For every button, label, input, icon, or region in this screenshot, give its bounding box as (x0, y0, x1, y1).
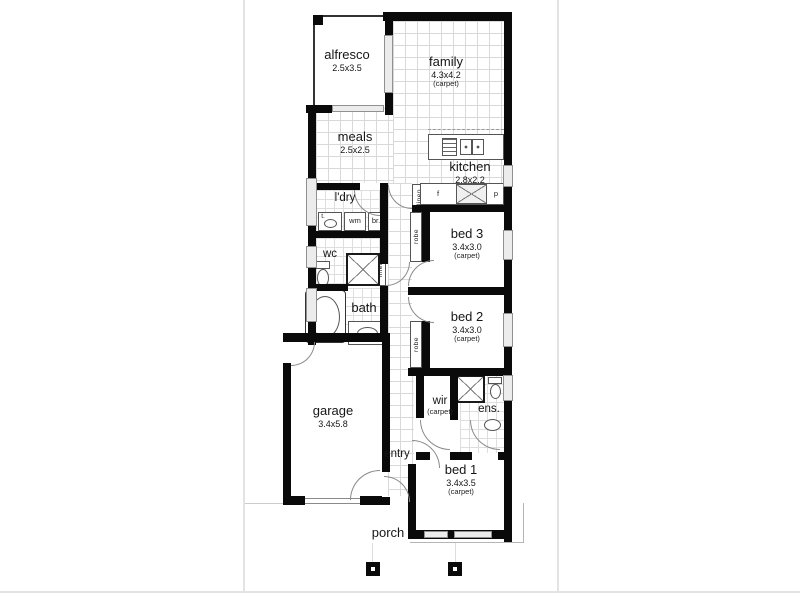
room-size: 2.8x2.2 (449, 175, 490, 185)
wall (380, 286, 388, 338)
sink-icon (460, 139, 472, 155)
room-name: wir (427, 395, 453, 408)
garage-door (305, 498, 360, 504)
room-label-bath: bath (351, 301, 376, 316)
wall (308, 231, 388, 238)
porch-post-icon (371, 567, 375, 571)
trough-label: t. (321, 213, 325, 220)
door-arc-garage-side (291, 342, 315, 366)
pantry-label: p (494, 189, 498, 198)
wall (283, 363, 291, 505)
wall (283, 496, 305, 505)
page-border-right (557, 0, 559, 591)
alfresco-post-icon (313, 15, 323, 25)
shower-icon (456, 375, 485, 403)
room-label-garage: garage 3.4x5.8 (313, 404, 353, 429)
alfresco-edge (313, 15, 387, 17)
toilet-icon (315, 261, 330, 269)
toilet-icon (490, 384, 501, 399)
floor-plan: linen robe robe linen f p t. wm br. (0, 0, 800, 600)
robe-bed3-label: robe (413, 229, 420, 244)
window-meals (306, 178, 317, 226)
room-label-alfresco: alfresco 2.5x3.5 (324, 48, 370, 73)
room-label-porch: porch (372, 526, 405, 541)
room-name: meals (338, 130, 373, 145)
wall (283, 333, 388, 342)
porch-slab (410, 503, 524, 543)
overhead-cupboard-dash (428, 129, 504, 133)
wall (380, 183, 388, 238)
room-label-bed1: bed 1 3.4x3.5 (carpet) (445, 463, 478, 496)
room-label-entry: entry (384, 448, 410, 461)
room-name: bed 3 (451, 227, 484, 242)
room-label-bed3: bed 3 3.4x3.0 (carpet) (451, 227, 484, 260)
broom-label: br. (372, 216, 380, 225)
room-name: wc (323, 248, 337, 261)
robe-bed3: robe (410, 212, 422, 262)
post-guide-line (455, 543, 456, 562)
post-guide-line (372, 543, 373, 562)
window-bath (306, 288, 317, 322)
room-label-ens: ens. (478, 403, 500, 416)
window-ens (503, 375, 513, 401)
wall (450, 452, 472, 460)
sink-icon (472, 139, 484, 155)
room-name: l'dry (335, 192, 356, 205)
alfresco-edge (313, 15, 315, 107)
trough-basin-icon (324, 219, 337, 228)
room-name: bath (351, 301, 376, 316)
room-name: alfresco (324, 48, 370, 63)
window-wc (306, 246, 317, 268)
room-label-bed2: bed 2 3.4x3.0 (carpet) (451, 310, 484, 343)
wall (383, 12, 512, 21)
room-name: garage (313, 404, 353, 419)
wall (422, 212, 430, 262)
porch-post-icon (453, 567, 457, 571)
room-name: entry (384, 448, 410, 461)
room-label-wir: wir (carpet) (427, 395, 453, 416)
washing-machine-label: wm (349, 216, 361, 225)
wall (504, 12, 512, 543)
wall (380, 238, 388, 264)
room-note: (carpet) (429, 80, 463, 88)
boundary-line (245, 503, 283, 504)
wall (498, 452, 512, 460)
room-size: 3.4x5.8 (313, 419, 353, 429)
room-name: bed 2 (451, 310, 484, 325)
appliance-icon (456, 184, 487, 204)
room-name: porch (372, 526, 405, 541)
room-label-family: family 4.3x4.2 (carpet) (429, 55, 463, 88)
room-size: 2.5x3.5 (324, 63, 370, 73)
page-border-bottom (0, 591, 800, 593)
window-family-alfresco (384, 35, 393, 93)
door-arc-garage-internal (350, 470, 380, 500)
robe-bed2-label: robe (413, 337, 420, 352)
room-name: family (429, 55, 463, 70)
room-name: kitchen (449, 160, 490, 175)
room-note: (carpet) (427, 408, 453, 416)
fridge-label: f (437, 189, 439, 198)
room-name: ens. (478, 403, 500, 416)
window-bed2 (503, 313, 513, 347)
room-name: bed 1 (445, 463, 478, 478)
window-bed3 (503, 230, 513, 260)
window-alfresco (332, 105, 384, 112)
wall (416, 376, 424, 418)
room-label-wc: wc (323, 248, 337, 261)
room-note: (carpet) (451, 252, 484, 260)
room-size: 2.5x2.5 (338, 145, 373, 155)
toilet-icon (488, 377, 502, 384)
room-note: (carpet) (451, 335, 484, 343)
room-label-laundry: l'dry (335, 192, 356, 205)
wall (412, 205, 512, 212)
robe-bed2: robe (410, 321, 422, 368)
shower-icon (346, 253, 380, 286)
room-label-kitchen: kitchen 2.8x2.2 (449, 160, 490, 185)
wall (408, 287, 512, 295)
wall (422, 321, 430, 368)
cooktop-icon (442, 138, 457, 156)
wall (408, 368, 512, 376)
room-label-meals: meals 2.5x2.5 (338, 130, 373, 155)
window-kitchen (503, 165, 513, 187)
room-note: (carpet) (445, 488, 478, 496)
